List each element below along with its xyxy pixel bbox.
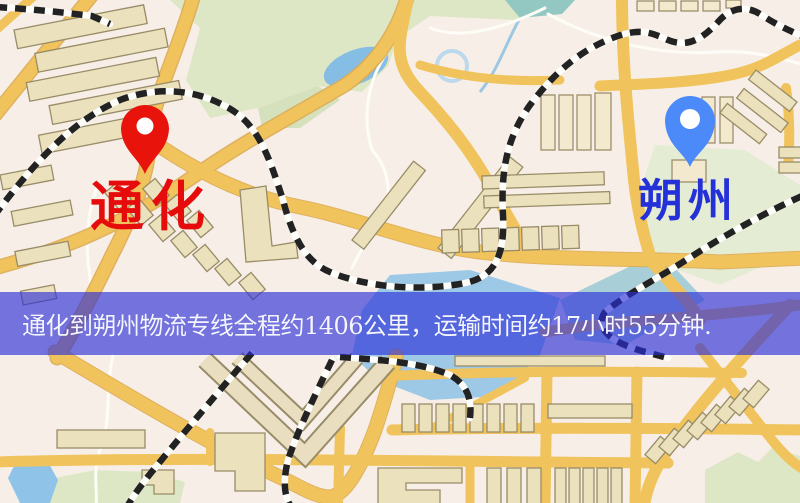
origin-label: 通化 (90, 174, 212, 238)
destination-pin-hole (680, 109, 700, 129)
route-info-banner: 通化到朔州物流专线全程约1406公里，运输时间约17小时55分钟. (0, 292, 800, 355)
origin-pin-hole (137, 118, 154, 135)
origin-pin[interactable] (121, 105, 169, 174)
map-canvas[interactable]: 通化 朔州 通化到朔州物流专线全程约1406公里，运输时间约17小时55分钟. (0, 0, 800, 503)
destination-label: 朔州 (638, 174, 738, 227)
map-artwork: 通化 朔州 (0, 0, 800, 503)
route-info-text: 通化到朔州物流专线全程约1406公里，运输时间约17小时55分钟. (22, 306, 711, 341)
